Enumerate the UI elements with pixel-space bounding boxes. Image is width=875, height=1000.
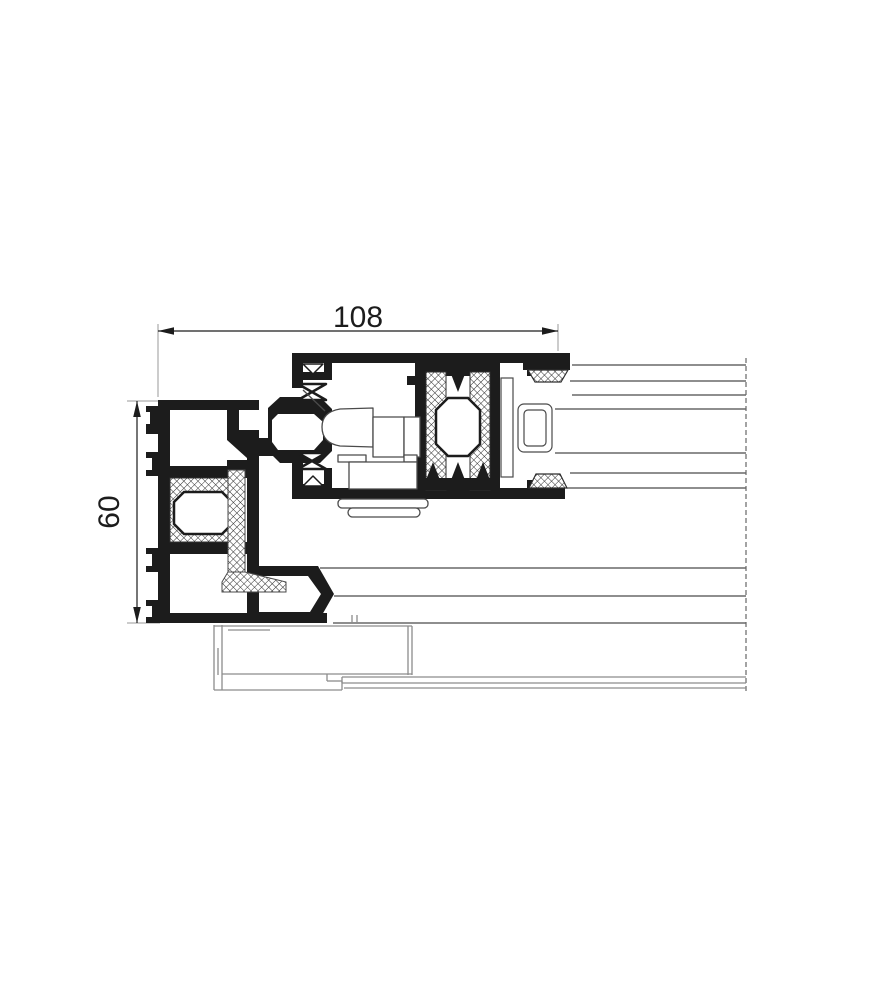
lock-nose [322, 408, 373, 447]
dimension-height-label: 60 [93, 495, 126, 528]
lock-keep [349, 462, 417, 489]
lock-faceplate [338, 499, 428, 508]
drawing-page: 108 60 [0, 0, 875, 1000]
frame-thermal-break-cavity [174, 492, 232, 534]
sill-track-outline [214, 615, 746, 690]
glazing-pocket [501, 378, 552, 477]
frame-outer-wall [158, 400, 170, 623]
dimension-width-label: 108 [333, 301, 383, 334]
sash-thermal-break [423, 363, 493, 490]
sash-thermal-cavity [436, 398, 480, 456]
frame-clip-hooks [146, 406, 158, 623]
frame-top-wall [158, 400, 259, 410]
arrowhead-down-icon [133, 607, 141, 623]
frame-bead-leg [259, 566, 334, 622]
arrowhead-left-icon [158, 327, 174, 335]
arrowhead-up-icon [133, 401, 141, 417]
dimension-height-60: 60 [93, 401, 160, 623]
arrowhead-right-icon [542, 327, 558, 335]
section-drawing-canvas: 108 60 [0, 0, 875, 1000]
